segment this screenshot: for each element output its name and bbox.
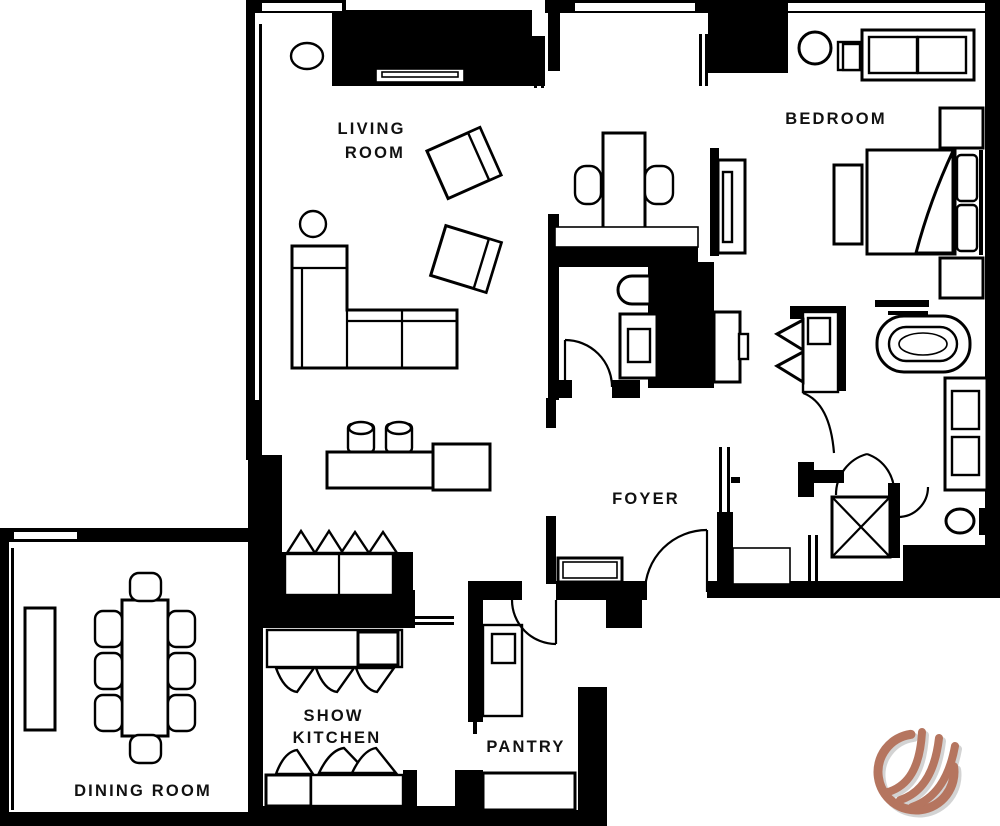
bathroom <box>777 312 987 557</box>
bench-icon <box>834 165 862 244</box>
door-swing-icon <box>356 668 394 692</box>
kitchen-island-icon <box>267 630 402 692</box>
sectional-sofa-icon <box>292 246 457 368</box>
counter-icon <box>555 227 698 247</box>
foyer: FOYER <box>558 490 790 592</box>
storage-cabinet-icon <box>945 378 987 490</box>
show-kitchen: SHOW KITCHEN <box>266 531 403 806</box>
room-label-bedroom: BEDROOM <box>785 110 887 128</box>
desk-icon <box>603 133 645 228</box>
counter-icon <box>433 444 490 490</box>
living-room: LIVING ROOM <box>291 43 501 490</box>
floor-plan-drawing: LIVING ROOM BEDROOM <box>0 0 1000 826</box>
nightstand-icon <box>940 108 983 148</box>
vanity-sink-icon <box>620 314 657 378</box>
toilet-icon <box>618 276 650 304</box>
room-label-show-kitchen: SHOW KITCHEN <box>293 707 382 747</box>
door-swing-icon <box>316 668 354 692</box>
pillow-icon <box>957 155 977 201</box>
flame-swoosh-logo <box>873 729 962 818</box>
pillow-icon <box>957 205 977 251</box>
armchair-icon <box>431 226 502 293</box>
pantry: PANTRY <box>483 600 575 810</box>
storage-cabinet-icon <box>714 312 748 382</box>
nightstand-icon <box>940 258 983 298</box>
armchair-icon <box>427 127 501 198</box>
desk-chair-icon <box>645 166 673 204</box>
room-label-living-room: LIVING ROOM <box>338 120 413 162</box>
console-table-icon <box>558 558 622 582</box>
door-swing-icon <box>645 530 707 592</box>
wardrobe-x-icon <box>832 454 894 557</box>
counter-icon <box>483 625 522 716</box>
dining-room: DINING ROOM <box>25 573 212 800</box>
door-swing-icon <box>803 393 834 453</box>
bed-icon <box>867 150 977 254</box>
desk-chair-icon <box>575 166 601 204</box>
round-side-table-icon <box>291 43 323 69</box>
bathtub-icon <box>877 316 970 372</box>
floor-plan-page: LIVING ROOM BEDROOM <box>0 0 1000 826</box>
wall-tv-icon <box>718 160 745 253</box>
upper-cabinet-icon <box>285 531 397 595</box>
dining-table-icon <box>122 600 168 736</box>
bedroom: BEDROOM <box>785 30 983 298</box>
loveseat-icon <box>843 30 974 80</box>
bar-stool-icon <box>348 422 412 452</box>
room-label-dining-room: DINING ROOM <box>74 782 212 800</box>
closet-floor <box>733 548 790 584</box>
door-swing-icon <box>276 668 314 692</box>
vanity-sink-icon <box>777 312 838 392</box>
room-label-pantry: PANTRY <box>486 738 565 756</box>
room-label-foyer: FOYER <box>612 490 680 508</box>
sideboard-icon <box>25 608 55 730</box>
tv-console-icon <box>376 69 464 82</box>
door-swing-icon <box>898 487 928 517</box>
round-table-icon <box>799 32 831 64</box>
counter-icon <box>483 773 575 810</box>
toilet-icon <box>946 509 974 533</box>
bar-counter-icon <box>327 452 433 488</box>
counter-icon <box>266 748 403 806</box>
round-side-table-icon <box>300 211 326 237</box>
door-swing-icon <box>565 340 612 387</box>
